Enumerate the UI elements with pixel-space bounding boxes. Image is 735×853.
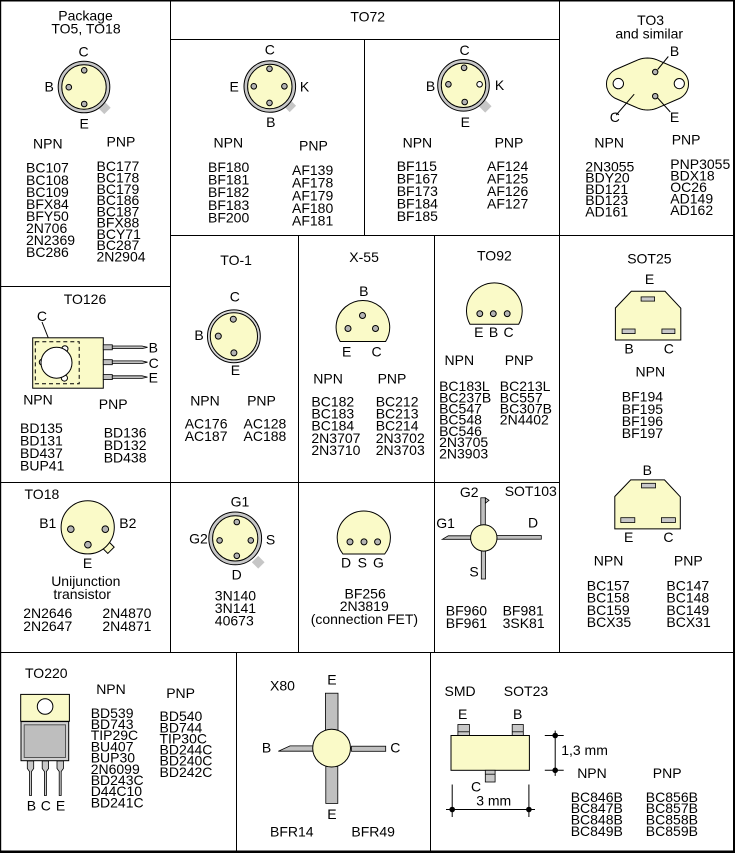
svg-text:C: C xyxy=(265,41,275,57)
svg-text:E: E xyxy=(149,370,158,386)
svg-text:G: G xyxy=(373,554,384,570)
svg-text:B: B xyxy=(27,798,36,814)
svg-text:TO5, TO18: TO5, TO18 xyxy=(51,20,120,36)
svg-text:K: K xyxy=(495,77,505,93)
svg-text:AD161: AD161 xyxy=(585,203,628,219)
svg-text:BC849B: BC849B xyxy=(571,823,623,839)
svg-text:BF961: BF961 xyxy=(446,615,487,631)
svg-text:TO-1: TO-1 xyxy=(220,252,252,268)
svg-text:C: C xyxy=(663,529,673,545)
svg-text:G1: G1 xyxy=(436,515,455,531)
svg-text:BD241C: BD241C xyxy=(91,794,144,810)
svg-text:2N4871: 2N4871 xyxy=(102,618,151,634)
svg-text:S: S xyxy=(469,564,478,580)
svg-text:B: B xyxy=(426,78,435,94)
svg-text:2N2904: 2N2904 xyxy=(97,248,146,264)
svg-text:2N3703: 2N3703 xyxy=(376,442,425,458)
svg-text:SOT23: SOT23 xyxy=(504,683,549,699)
svg-text:BF200: BF200 xyxy=(208,210,249,226)
svg-text:BC286: BC286 xyxy=(26,244,69,260)
svg-text:PNP: PNP xyxy=(99,396,128,412)
svg-text:E: E xyxy=(230,79,239,95)
svg-text:SOT103: SOT103 xyxy=(505,483,557,499)
svg-text:BD242C: BD242C xyxy=(160,764,213,780)
svg-text:transistor: transistor xyxy=(53,586,111,602)
svg-text:3 mm: 3 mm xyxy=(476,793,511,809)
svg-text:2N3903: 2N3903 xyxy=(439,445,488,461)
svg-text:B: B xyxy=(489,324,498,340)
svg-text:AC188: AC188 xyxy=(244,428,287,444)
svg-text:X-55: X-55 xyxy=(349,249,379,265)
svg-text:B2: B2 xyxy=(119,515,136,531)
svg-text:NPN: NPN xyxy=(96,681,126,697)
svg-text:and similar: and similar xyxy=(615,25,683,41)
svg-text:PNP: PNP xyxy=(378,371,407,387)
svg-text:C: C xyxy=(664,340,674,356)
svg-text:TO18: TO18 xyxy=(25,486,60,502)
svg-text:SOT25: SOT25 xyxy=(627,250,672,266)
svg-text:BD438: BD438 xyxy=(104,449,147,465)
svg-text:PNP: PNP xyxy=(495,135,524,151)
svg-text:D: D xyxy=(528,514,538,530)
svg-text:TO126: TO126 xyxy=(64,291,107,307)
svg-text:B: B xyxy=(45,79,54,95)
svg-text:B: B xyxy=(149,340,158,356)
svg-text:C: C xyxy=(610,109,620,125)
svg-text:E: E xyxy=(624,529,633,545)
svg-text:NPN: NPN xyxy=(313,371,343,387)
svg-text:BUP41: BUP41 xyxy=(20,457,65,473)
svg-text:E: E xyxy=(645,271,654,287)
svg-text:NPN: NPN xyxy=(33,136,63,152)
svg-text:NPN: NPN xyxy=(403,135,433,151)
svg-text:AC187: AC187 xyxy=(185,428,228,444)
svg-text:C: C xyxy=(503,324,513,340)
svg-text:PNP: PNP xyxy=(505,352,534,368)
svg-text:2N4402: 2N4402 xyxy=(500,412,549,428)
svg-text:NPN: NPN xyxy=(445,352,475,368)
svg-text:C: C xyxy=(37,308,47,324)
svg-text:2N3710: 2N3710 xyxy=(311,442,360,458)
svg-text:NPN: NPN xyxy=(214,135,244,151)
svg-text:E: E xyxy=(458,706,467,722)
svg-text:NPN: NPN xyxy=(577,765,607,781)
svg-text:PNP: PNP xyxy=(674,553,703,569)
svg-text:(connection FET): (connection FET) xyxy=(311,611,418,627)
svg-text:NPN: NPN xyxy=(594,135,624,151)
svg-text:SMD: SMD xyxy=(445,683,476,699)
svg-text:40673: 40673 xyxy=(215,613,254,629)
svg-text:B: B xyxy=(670,43,679,59)
svg-text:E: E xyxy=(461,114,470,130)
svg-text:TO72: TO72 xyxy=(350,8,385,24)
svg-text:TO220: TO220 xyxy=(25,665,68,681)
svg-text:C: C xyxy=(78,43,88,59)
svg-text:E: E xyxy=(83,555,92,571)
svg-text:AD162: AD162 xyxy=(670,202,713,218)
svg-text:BF185: BF185 xyxy=(397,208,438,224)
svg-text:B: B xyxy=(266,114,275,130)
svg-text:D: D xyxy=(232,566,242,582)
svg-text:E: E xyxy=(231,362,240,378)
svg-text:C: C xyxy=(41,798,51,814)
svg-text:C: C xyxy=(230,289,240,305)
svg-text:2N2647: 2N2647 xyxy=(23,618,72,634)
svg-text:E: E xyxy=(474,324,483,340)
svg-text:S: S xyxy=(266,532,275,548)
svg-text:E: E xyxy=(670,109,679,125)
svg-text:X80: X80 xyxy=(270,678,295,694)
svg-text:G2: G2 xyxy=(189,530,208,546)
svg-text:NPN: NPN xyxy=(23,392,53,408)
svg-text:D: D xyxy=(341,554,351,570)
svg-text:AF181: AF181 xyxy=(292,213,333,229)
svg-text:PNP: PNP xyxy=(653,765,682,781)
svg-text:C: C xyxy=(460,42,470,58)
svg-text:C: C xyxy=(390,740,400,756)
svg-text:E: E xyxy=(342,344,351,360)
svg-text:B: B xyxy=(624,340,633,356)
svg-text:E: E xyxy=(56,798,65,814)
svg-text:C: C xyxy=(372,344,382,360)
svg-text:NPN: NPN xyxy=(190,393,220,409)
svg-text:1,3 mm: 1,3 mm xyxy=(561,742,608,758)
svg-text:E: E xyxy=(327,806,336,822)
svg-text:PNP: PNP xyxy=(107,134,136,150)
svg-text:B: B xyxy=(513,706,522,722)
svg-text:S: S xyxy=(358,554,367,570)
svg-text:AF127: AF127 xyxy=(487,195,528,211)
svg-text:B: B xyxy=(359,283,368,299)
svg-text:K: K xyxy=(300,78,310,94)
svg-text:G1: G1 xyxy=(231,494,250,510)
svg-text:BC859B: BC859B xyxy=(646,823,698,839)
svg-text:B: B xyxy=(643,462,652,478)
svg-text:TO92: TO92 xyxy=(477,247,512,263)
svg-text:E: E xyxy=(80,116,89,132)
svg-text:3SK81: 3SK81 xyxy=(503,615,545,631)
svg-text:PNP: PNP xyxy=(672,132,701,148)
svg-text:BCX31: BCX31 xyxy=(666,614,711,630)
svg-text:E: E xyxy=(327,672,336,688)
svg-text:BCX35: BCX35 xyxy=(587,614,632,630)
svg-text:NPN: NPN xyxy=(594,553,624,569)
svg-text:G2: G2 xyxy=(460,484,479,500)
svg-text:C: C xyxy=(149,355,159,371)
svg-text:PNP: PNP xyxy=(299,138,328,154)
svg-text:BFR49: BFR49 xyxy=(351,824,395,840)
svg-text:BFR14: BFR14 xyxy=(270,824,314,840)
svg-text:BF197: BF197 xyxy=(622,425,663,441)
svg-text:NPN: NPN xyxy=(636,364,666,380)
svg-text:PNP: PNP xyxy=(166,685,195,701)
svg-text:B: B xyxy=(262,740,271,756)
svg-text:PNP: PNP xyxy=(247,393,276,409)
svg-text:B: B xyxy=(194,327,203,343)
svg-text:B1: B1 xyxy=(39,515,56,531)
